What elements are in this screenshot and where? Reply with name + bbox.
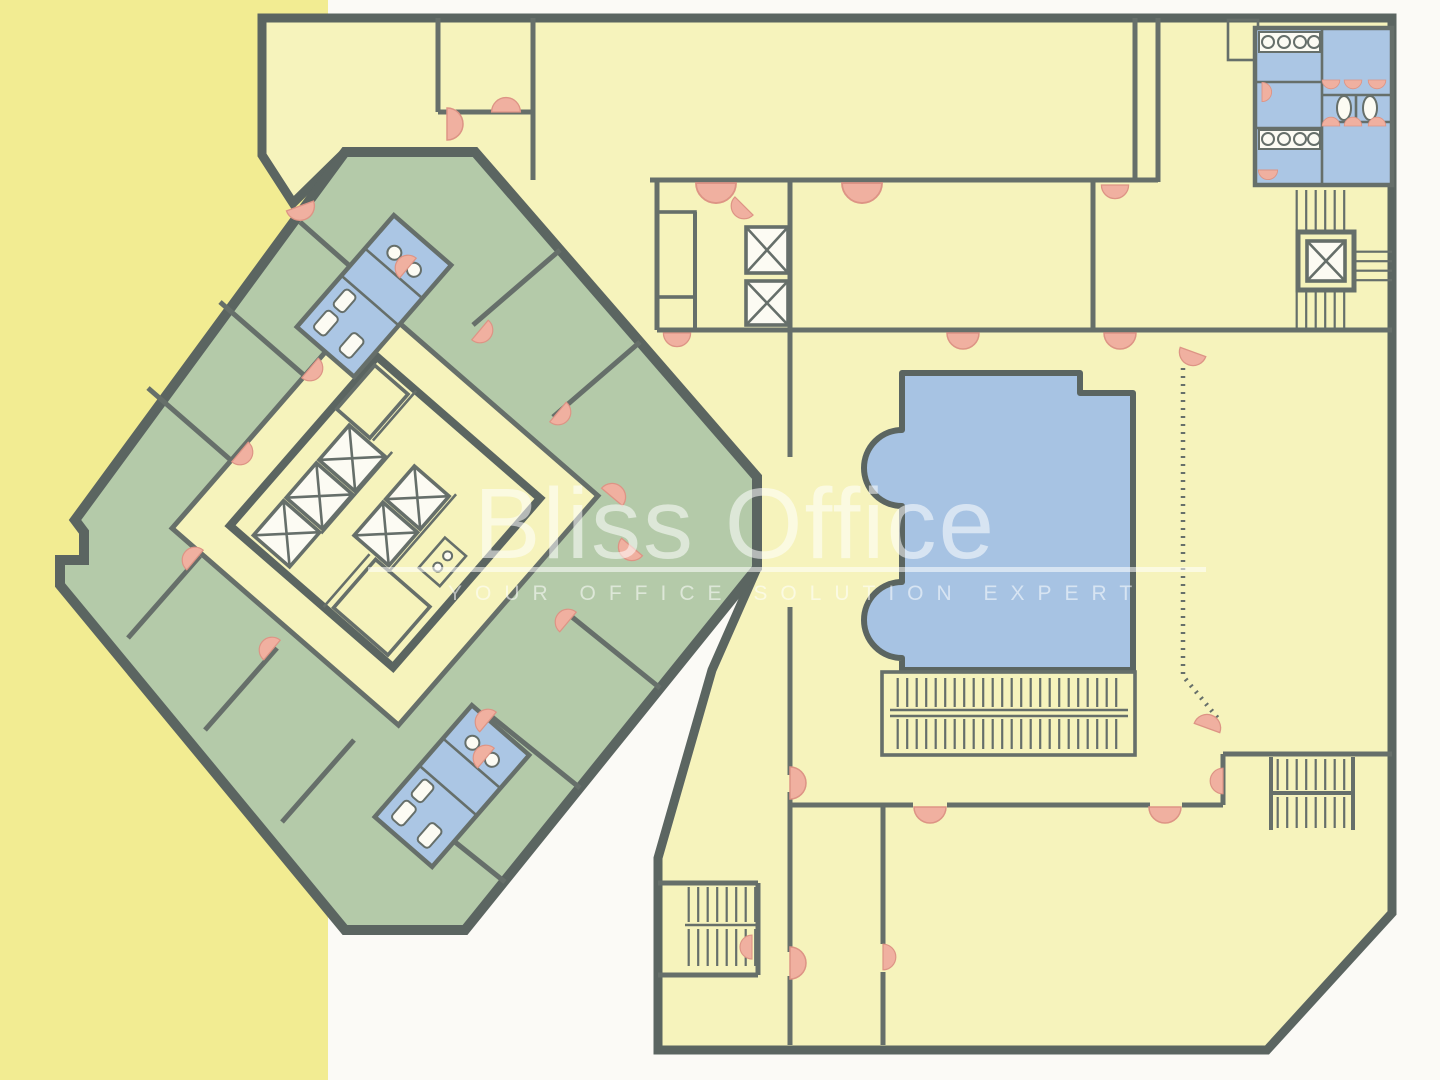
floor-plan-page: Bliss Office YOUR OFFICE SOLUTION EXPERT [0, 0, 1440, 1080]
shaft-hatch [1292, 292, 1350, 330]
floor-plan-drawing: Bliss Office YOUR OFFICE SOLUTION EXPERT [0, 0, 1440, 1080]
grand-stair-treads [895, 678, 1123, 707]
sink-row [1259, 32, 1320, 52]
stair-treads [687, 887, 756, 922]
sink-row [1259, 130, 1320, 149]
shaft-hatch [1354, 247, 1392, 287]
sink-icon [1308, 36, 1320, 48]
stair-treads [1273, 797, 1351, 828]
sink-icon [1262, 36, 1274, 48]
watermark-subtitle: YOUR OFFICE SOLUTION EXPERT [448, 582, 1145, 605]
stair-treads [1273, 759, 1351, 790]
watermark-divider [368, 567, 1206, 572]
watermark-title: Bliss Office [474, 468, 996, 580]
sink-icon [1278, 133, 1290, 145]
grand-stair-treads [895, 719, 1123, 749]
sink-icon [1278, 36, 1290, 48]
toilet-icon [1337, 96, 1351, 120]
stairs-bottom-right [1271, 757, 1353, 830]
toilet-icon [1363, 96, 1377, 120]
restroom-block [1255, 28, 1392, 185]
shaft-hatch [1292, 190, 1350, 234]
sink-icon [1294, 133, 1306, 145]
sink-icon [1262, 133, 1274, 145]
sink-icon [1308, 133, 1320, 145]
sink-icon [1294, 36, 1306, 48]
